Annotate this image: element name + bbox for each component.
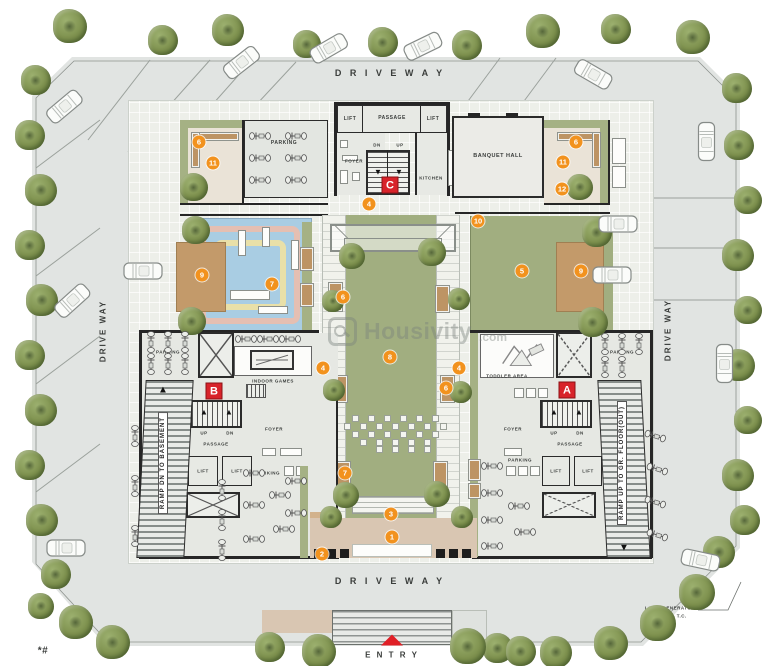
entry-pad-left — [262, 610, 332, 633]
bike-icon — [595, 355, 613, 379]
bike-icon — [158, 352, 176, 376]
bike-icon — [507, 498, 531, 516]
tree-icon — [448, 288, 470, 310]
arr: ▲ — [200, 408, 208, 417]
tree-icon — [15, 340, 45, 370]
lift-label: LIFT — [427, 116, 440, 122]
foyer-label: FOYER — [345, 159, 363, 164]
plan-marker-5: 5 — [516, 265, 529, 278]
bike-icon — [629, 332, 647, 356]
pier — [449, 549, 458, 558]
plan-marker-11: 11 — [207, 157, 220, 170]
stepping-stone — [432, 431, 439, 438]
toddler-area-label: TODDLER AREA — [486, 374, 528, 379]
car-icon — [592, 266, 632, 289]
bike-icon — [480, 512, 504, 530]
bike-icon — [175, 352, 193, 376]
decor — [200, 334, 232, 376]
stepping-stone — [376, 446, 383, 453]
bike-icon — [480, 485, 504, 503]
stepping-stone — [392, 423, 399, 430]
bike-icon — [125, 524, 143, 548]
bike-icon — [513, 524, 537, 542]
plan-marker-8: 8 — [384, 351, 397, 364]
dn-label: DN — [373, 143, 381, 148]
stepping-stone — [424, 439, 431, 446]
bike-icon — [212, 508, 230, 532]
decor — [529, 344, 544, 356]
tree-icon — [506, 636, 536, 666]
plan-marker-9: 9 — [575, 265, 588, 278]
stepping-stone — [424, 446, 431, 453]
utility-room — [612, 166, 626, 188]
tree-icon — [320, 506, 342, 528]
planter-strip — [600, 120, 608, 204]
lift-label: LIFT — [344, 116, 357, 122]
stepping-stone — [392, 446, 399, 453]
bike-icon — [248, 172, 272, 190]
decor — [256, 355, 288, 365]
tree-icon — [148, 25, 178, 55]
pier — [436, 549, 445, 558]
planter-box — [301, 248, 313, 270]
plan-marker-6: 6 — [570, 136, 583, 149]
bike-icon — [612, 355, 630, 379]
arr: ▼ — [619, 543, 629, 554]
plan-marker-11: 11 — [557, 156, 570, 169]
stepping-stone — [360, 423, 367, 430]
foyer-label: FOYER — [265, 427, 283, 432]
driveway-label-top: D R I V E W A Y — [335, 68, 445, 78]
furn — [506, 466, 516, 476]
bike-icon — [158, 330, 176, 354]
up-label: UP — [200, 431, 207, 436]
tree-icon — [679, 574, 715, 610]
tree-icon — [640, 605, 676, 641]
stepping-stone — [440, 423, 447, 430]
tree-icon — [21, 65, 51, 95]
furn — [504, 448, 522, 456]
stepping-stone — [424, 423, 431, 430]
stepping-stone — [384, 431, 391, 438]
plan-marker-9: 9 — [196, 269, 209, 282]
arr: ▲ — [225, 408, 233, 417]
decor — [510, 350, 531, 365]
bike-icon — [212, 538, 230, 562]
tree-icon — [722, 459, 754, 491]
stepping-stone — [416, 431, 423, 438]
tree-icon — [451, 506, 473, 528]
decor — [544, 494, 594, 516]
housivity-logo-icon — [328, 317, 357, 346]
foyer-label: FOYER — [504, 427, 522, 432]
car-icon — [46, 539, 86, 562]
bike-icon — [242, 531, 266, 549]
door-block — [506, 113, 518, 118]
wall — [608, 120, 610, 204]
bike-icon — [212, 478, 230, 502]
stepping-stone — [368, 431, 375, 438]
entry-arrow-icon — [381, 635, 403, 646]
tree-icon — [212, 14, 244, 46]
watermark: Housivity .com — [328, 317, 507, 346]
bike-icon — [595, 332, 613, 356]
bike-icon — [141, 330, 159, 354]
tree-icon — [676, 20, 710, 54]
tree-icon — [15, 230, 45, 260]
door-block — [468, 113, 480, 118]
footnote-label: *# — [38, 646, 48, 657]
bike-icon — [278, 331, 302, 349]
tree-icon — [452, 30, 482, 60]
decor — [544, 494, 594, 516]
passage-label: PASSAGE — [203, 442, 228, 447]
tree-icon — [601, 14, 631, 44]
lift-label: LIFT — [582, 469, 594, 474]
plan-marker-2: 2 — [316, 548, 329, 561]
wall — [544, 203, 610, 205]
tree-icon — [722, 73, 752, 103]
tree-icon — [526, 14, 560, 48]
tree-icon — [540, 636, 572, 666]
stepping-stone — [392, 439, 399, 446]
tree-icon — [15, 450, 45, 480]
furn — [538, 388, 548, 398]
wall — [180, 214, 328, 216]
lift-label: LIFT — [550, 469, 562, 474]
plaza-entry-gap — [352, 544, 432, 557]
shaft-a2 — [542, 492, 596, 518]
car-icon — [711, 344, 734, 384]
tree-icon — [255, 632, 285, 662]
tree-icon — [25, 394, 57, 426]
bike-icon — [612, 332, 630, 356]
stepping-stone — [368, 415, 375, 422]
tree-icon — [424, 481, 450, 507]
decor — [558, 334, 590, 376]
plan-marker-7: 7 — [266, 278, 279, 291]
planter-box — [469, 460, 480, 480]
tree-icon — [722, 239, 754, 271]
tree-icon — [59, 605, 93, 639]
staircase-a — [540, 400, 592, 428]
tree-icon — [450, 381, 472, 403]
bike-icon — [141, 352, 159, 376]
stepping-stone — [384, 415, 391, 422]
lift-label: LIFT — [197, 469, 209, 474]
play-equipment — [230, 290, 270, 300]
stepping-stone — [408, 439, 415, 446]
bike-icon — [125, 424, 143, 448]
play-equipment — [258, 306, 288, 314]
up-label: UP — [550, 431, 557, 436]
block-b-badge: B — [206, 383, 223, 400]
tree-icon — [25, 174, 57, 206]
tree-icon — [333, 482, 359, 508]
furniture — [340, 170, 348, 184]
planter-strip — [302, 222, 312, 330]
furn — [518, 466, 528, 476]
bike-icon — [242, 465, 266, 483]
decor — [252, 352, 292, 368]
plan-marker-6: 6 — [337, 291, 350, 304]
furn — [526, 388, 536, 398]
play-equipment — [238, 230, 246, 256]
entry-label: E N T R Y — [365, 651, 419, 660]
tree-icon — [182, 216, 210, 244]
bike-icon — [242, 497, 266, 515]
stepping-stone — [376, 439, 383, 446]
tree-icon — [53, 9, 87, 43]
car-icon — [693, 122, 716, 162]
passage-label: PASSAGE — [378, 115, 406, 121]
tree-icon — [15, 120, 45, 150]
plan-marker-6: 6 — [193, 136, 206, 149]
tree-icon — [302, 634, 336, 666]
furn — [280, 448, 302, 456]
shaft-a — [556, 332, 592, 378]
plan-marker-10: 10 — [472, 215, 485, 228]
bike-icon — [284, 150, 308, 168]
block-a-badge: A — [559, 382, 576, 399]
bike-icon — [256, 331, 280, 349]
play-equipment — [291, 240, 299, 270]
tree-icon — [26, 284, 58, 316]
bike-icon — [480, 538, 504, 556]
driveway-label-left: DRIVE WAY — [99, 300, 108, 362]
furn — [530, 466, 540, 476]
furniture — [340, 140, 348, 148]
dn-label: DN — [576, 431, 584, 436]
bike-icon — [480, 458, 504, 476]
up-label: UP — [396, 143, 403, 148]
tree-icon — [339, 243, 365, 269]
driveway-label-right: DRIVE WAY — [664, 299, 673, 361]
stepping-stone — [344, 423, 351, 430]
pier — [462, 549, 471, 558]
plan-marker-7: 7 — [339, 467, 352, 480]
banquet-hall-label: BANQUET HALL — [473, 153, 522, 159]
indoor-games-label: INDOOR GAMES — [252, 379, 294, 384]
plan-marker-3: 3 — [385, 508, 398, 521]
planter-box — [469, 484, 480, 498]
bike-icon — [284, 128, 308, 146]
stepping-stone — [408, 446, 415, 453]
decor — [558, 334, 590, 376]
plan-marker-1: 1 — [386, 531, 399, 544]
arr: ▼ — [395, 168, 403, 177]
block-c-badge: C — [382, 177, 399, 194]
stepping-stone — [400, 431, 407, 438]
watermark-tld: .com — [479, 330, 507, 346]
tree-icon — [28, 593, 54, 619]
tree-icon — [96, 625, 130, 659]
arr: ▲ — [158, 385, 168, 396]
bike-icon — [268, 487, 292, 505]
stepping-stone — [352, 431, 359, 438]
furn — [262, 448, 276, 456]
tree-icon — [26, 504, 58, 536]
tree-icon — [180, 173, 208, 201]
ramp-basement-label: RAMP DN TO BASEMENT — [158, 412, 168, 514]
bike-icon — [272, 521, 296, 539]
seating-bench — [593, 133, 600, 167]
driveway-label-bottom: D R I V E W A Y — [335, 576, 445, 586]
bike-icon — [125, 474, 143, 498]
tree-icon — [734, 186, 762, 214]
bike-icon — [284, 172, 308, 190]
watermark-brand: Housivity — [364, 318, 472, 345]
car-icon — [123, 262, 163, 285]
tree-icon — [730, 505, 760, 535]
bike-icon — [248, 128, 272, 146]
vent-grill — [246, 384, 266, 398]
stepping-stone — [376, 423, 383, 430]
car-icon — [598, 215, 638, 238]
furniture — [352, 172, 360, 181]
stepping-stone — [400, 415, 407, 422]
bike-icon — [248, 150, 272, 168]
bike-icon — [234, 331, 258, 349]
ramp-ground-label: RAMP UP TO GR. FLOOR(OUT) — [617, 401, 627, 525]
kitchen-room — [415, 133, 447, 195]
tree-icon — [594, 626, 628, 660]
staircase-b — [190, 400, 242, 428]
billiards-table — [250, 350, 294, 370]
parking-label: PARKING — [508, 458, 532, 463]
tree-icon — [323, 379, 345, 401]
tree-icon — [450, 628, 486, 664]
tree-icon — [41, 559, 71, 589]
tree-icon — [734, 296, 762, 324]
stepping-stone — [360, 439, 367, 446]
pier — [340, 549, 349, 558]
tree-icon — [724, 130, 754, 160]
arr: ▲ — [550, 408, 558, 417]
plan-marker-4: 4 — [363, 198, 376, 211]
utility-room — [612, 138, 626, 164]
decor — [200, 334, 232, 376]
arr: ▲ — [575, 408, 583, 417]
stepping-stone — [352, 415, 359, 422]
plan-marker-4: 4 — [317, 362, 330, 375]
stepping-stone — [408, 423, 415, 430]
planter-box — [301, 284, 313, 306]
bike-icon — [175, 330, 193, 354]
dn-label: DN — [226, 431, 234, 436]
tree-icon — [418, 238, 446, 266]
passage-label: PASSAGE — [557, 442, 582, 447]
plan-marker-12: 12 — [556, 183, 569, 196]
plan-marker-6: 6 — [440, 382, 453, 395]
tree-icon — [368, 27, 398, 57]
planter-strip — [180, 120, 244, 128]
stepping-stone — [432, 415, 439, 422]
arr: ▼ — [374, 168, 382, 177]
wall — [180, 203, 328, 205]
stepping-stone — [416, 415, 423, 422]
plan-marker-4: 4 — [453, 362, 466, 375]
planter-strip — [544, 120, 608, 128]
tree-icon — [567, 174, 593, 200]
tree-icon — [734, 406, 762, 434]
play-equipment — [262, 227, 270, 247]
kitchen-label: KITCHEN — [419, 176, 443, 181]
site-plan: ▼ ▼ — [0, 0, 768, 666]
shaft-b — [198, 332, 234, 378]
furn — [514, 388, 524, 398]
